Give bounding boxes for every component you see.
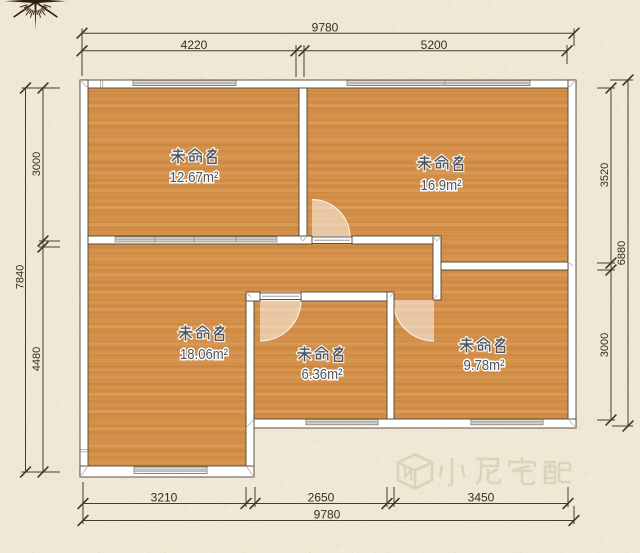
svg-text:3000: 3000 (599, 333, 611, 357)
svg-text:2650: 2650 (308, 491, 335, 505)
svg-text:7840: 7840 (15, 265, 27, 289)
svg-text:4220: 4220 (181, 38, 208, 52)
svg-text:4480: 4480 (31, 347, 43, 371)
svg-text:9.78m²: 9.78m² (464, 357, 505, 374)
svg-text:9780: 9780 (314, 508, 341, 522)
svg-text:16.9m²: 16.9m² (421, 177, 462, 194)
svg-text:6880: 6880 (616, 241, 628, 265)
svg-text:3000: 3000 (31, 152, 43, 176)
svg-text:3210: 3210 (151, 491, 178, 505)
svg-text:3450: 3450 (468, 491, 495, 505)
svg-text:5200: 5200 (421, 38, 448, 52)
svg-text:18.06m²: 18.06m² (180, 346, 228, 363)
svg-text:6.36m²: 6.36m² (302, 366, 343, 383)
svg-text:12.67m²: 12.67m² (170, 169, 219, 186)
svg-text:3520: 3520 (599, 163, 611, 187)
svg-text:9780: 9780 (312, 20, 339, 34)
